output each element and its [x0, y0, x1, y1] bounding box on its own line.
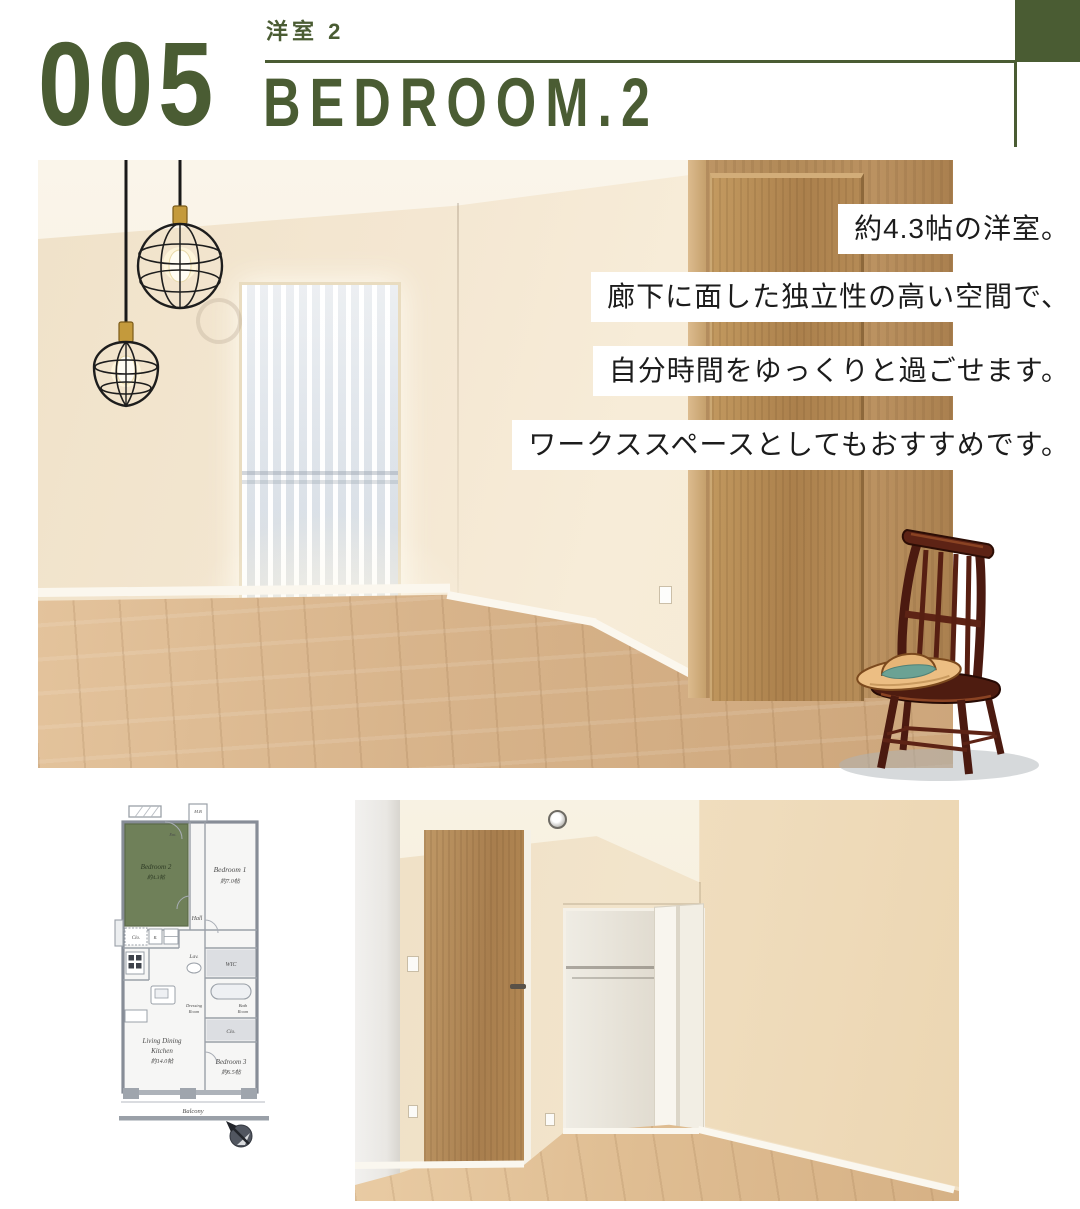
upper-balcony-hatch — [129, 806, 161, 817]
floor-plan: Bedroom 2 約4.3帖 Bedroom 1 約7.0帖 Hall M.B… — [105, 800, 285, 1155]
compass-north-icon — [226, 1121, 252, 1147]
plan-dressing-label-1: Dressing — [185, 1003, 203, 1008]
plan-bedroom1-size: 約7.0帖 — [220, 877, 241, 885]
light-switch — [407, 956, 419, 972]
plan-bath-label-2: Room — [237, 1009, 249, 1014]
plan-bedroom3-label: Bedroom 3 — [216, 1058, 247, 1066]
plan-ldk-label-1: Living Dining — [141, 1037, 182, 1045]
plan-hall-label: Hall — [191, 916, 203, 922]
plan-dressing-label-2: Room — [188, 1009, 200, 1014]
plan-ldk-label-2: Kitchen — [150, 1047, 173, 1055]
section-title-en: BEDROOM.2 — [263, 69, 659, 138]
photo-caption-line-3: 自分時間をゆっくりと過ごせます。 — [593, 346, 1080, 396]
closet-bifold-door — [654, 904, 704, 1138]
plan-balcony-edge — [119, 1116, 269, 1121]
bedroom-photo-secondary — [355, 800, 959, 1201]
plan-lav-label: Lav. — [188, 954, 198, 960]
header-rule — [265, 60, 1015, 63]
plan-bedroom2-size: 約4.3帖 — [147, 874, 166, 881]
plan-wic-label: WIC — [226, 962, 238, 968]
plan-bedroom2-label: Bedroom 2 — [141, 863, 172, 871]
wall-outlet — [545, 1113, 555, 1126]
listing-section-page: 005 洋室 2 BEDROOM.2 — [0, 0, 1080, 1209]
photo-caption-line-2: 廊下に面した独立性の高い空間で、 — [591, 272, 1080, 322]
baseboard — [563, 1128, 699, 1134]
photo-caption-line-4: ワークススペースとしてもおすすめです。 — [512, 420, 1080, 470]
section-number: 005 — [38, 24, 218, 143]
plan-left-duct — [115, 920, 123, 946]
plan-clo-label: Clo. — [226, 1029, 235, 1035]
plan-balcony-label: Balcony — [182, 1108, 203, 1115]
chair-with-straw-hat-illustration — [811, 482, 1041, 782]
plan-r-label: R. — [153, 935, 158, 940]
pendant-lights-illustration — [62, 160, 232, 440]
plan-mb-label: M.B — [193, 809, 202, 814]
corner-accent-tick — [1014, 62, 1017, 147]
plan-bath-label-1: Bath — [239, 1003, 248, 1008]
plan-bedroom1-label: Bedroom 1 — [214, 865, 247, 874]
plan-ent-label: Ent. — [168, 832, 176, 837]
door-handle — [510, 984, 526, 989]
section-subtitle-jp: 洋室 2 — [266, 14, 344, 46]
corner-accent-square — [1015, 0, 1080, 62]
outer-wall — [355, 800, 400, 1201]
wood-door — [424, 830, 524, 1165]
plan-bedroom3-size: 約6.5帖 — [221, 1068, 242, 1076]
wall-outlet — [659, 586, 672, 604]
plan-clo-left-label: Clo. — [132, 936, 140, 941]
photo-caption-line-1: 約4.3帖の洋室。 — [838, 204, 1080, 254]
wall-outlet — [408, 1105, 418, 1118]
plan-ldk-size: 約14.0帖 — [151, 1057, 175, 1065]
